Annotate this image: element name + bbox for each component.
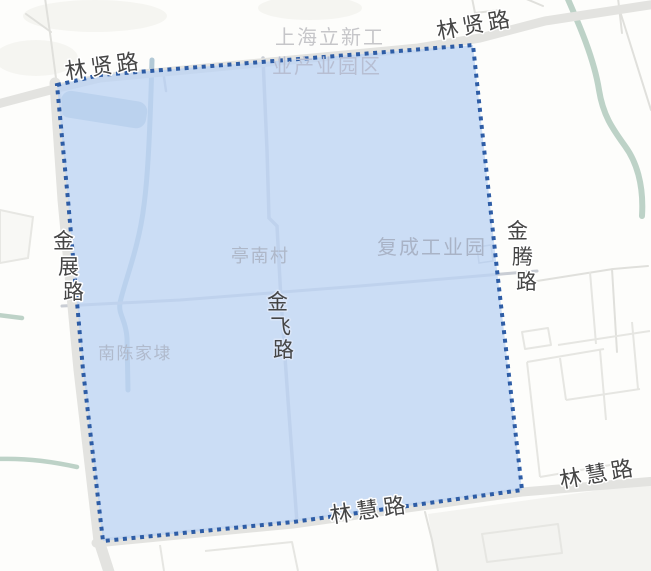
road-label-jinteng-char: 腾 <box>512 245 533 269</box>
selected-region-polygon[interactable] <box>57 45 522 541</box>
lane-path <box>558 272 650 345</box>
area-label-fucheng-industrial-park: 复成工业园 <box>377 235 487 259</box>
bg-blob <box>258 0 362 20</box>
area-label-industrial-park-line1: 上海立新工 <box>275 25 385 49</box>
road-label-jinteng-char: 金 <box>507 219 528 243</box>
map-canvas: 上海立新工 业产业园区 亭南村 复成工业园 南陈家埭 林贤路 林贤路 林慧路 林… <box>0 0 651 571</box>
lane-path <box>618 0 651 110</box>
map-view[interactable]: 上海立新工 业产业园区 亭南村 复成工业园 南陈家埭 林贤路 林贤路 林慧路 林… <box>0 0 651 571</box>
road-label-jinfei-char: 路 <box>273 338 294 362</box>
lane-path <box>160 542 298 571</box>
road-label-jinzhan-char: 展 <box>58 255 79 279</box>
road-label-jinzhan-char: 金 <box>53 229 74 253</box>
road-label-jinteng-char: 路 <box>516 270 537 294</box>
bg-block <box>0 210 33 263</box>
road-label-jinfei-char: 飞 <box>270 315 291 339</box>
road-label-jinteng: 金 腾 路 <box>507 219 537 294</box>
lane-path <box>524 0 543 6</box>
road-label-jinfei-char: 金 <box>267 290 288 314</box>
stream-path <box>0 459 77 467</box>
river-path <box>567 0 642 216</box>
area-label-industrial-park-line2: 业产业园区 <box>272 54 382 78</box>
area-label-tingnan-village: 亭南村 <box>231 246 290 267</box>
road-label-jinzhan-char: 路 <box>63 280 84 304</box>
area-label-nanchen-jiadai: 南陈家埭 <box>98 344 172 364</box>
building-outline <box>522 328 551 349</box>
stream-path <box>0 315 22 318</box>
